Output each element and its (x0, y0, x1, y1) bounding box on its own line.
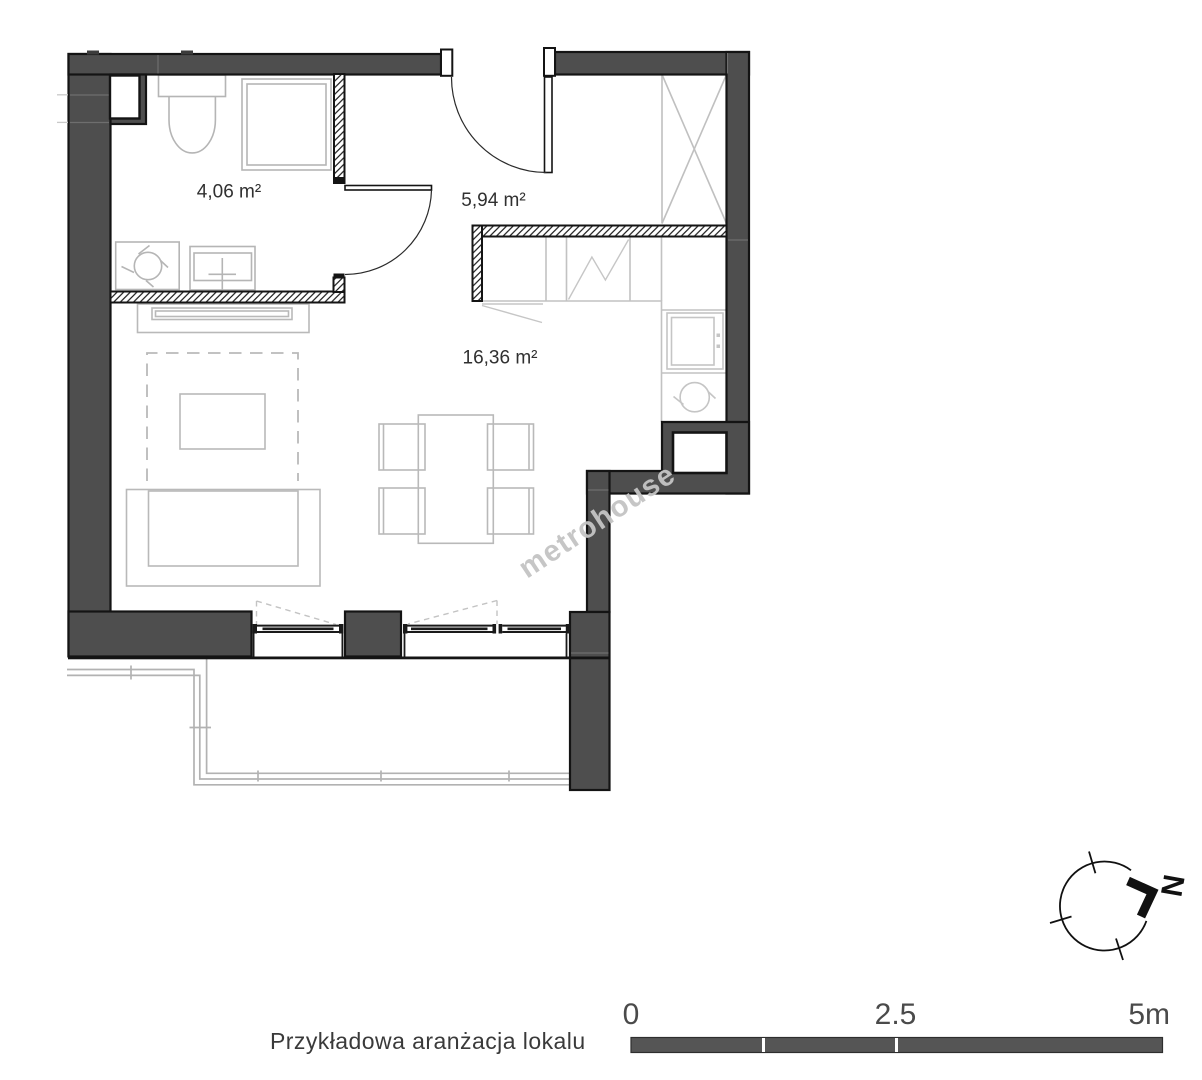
svg-text:5m: 5m (1128, 998, 1170, 1031)
svg-text:0: 0 (623, 998, 640, 1031)
svg-text:4,06 m²: 4,06 m² (197, 182, 261, 203)
svg-text:Przykładowa aranżacja lokalu: Przykładowa aranżacja lokalu (270, 1028, 586, 1054)
svg-text:16,36 m²: 16,36 m² (463, 348, 538, 369)
svg-text:5,94 m²: 5,94 m² (461, 190, 525, 211)
svg-text:2.5: 2.5 (875, 998, 917, 1031)
